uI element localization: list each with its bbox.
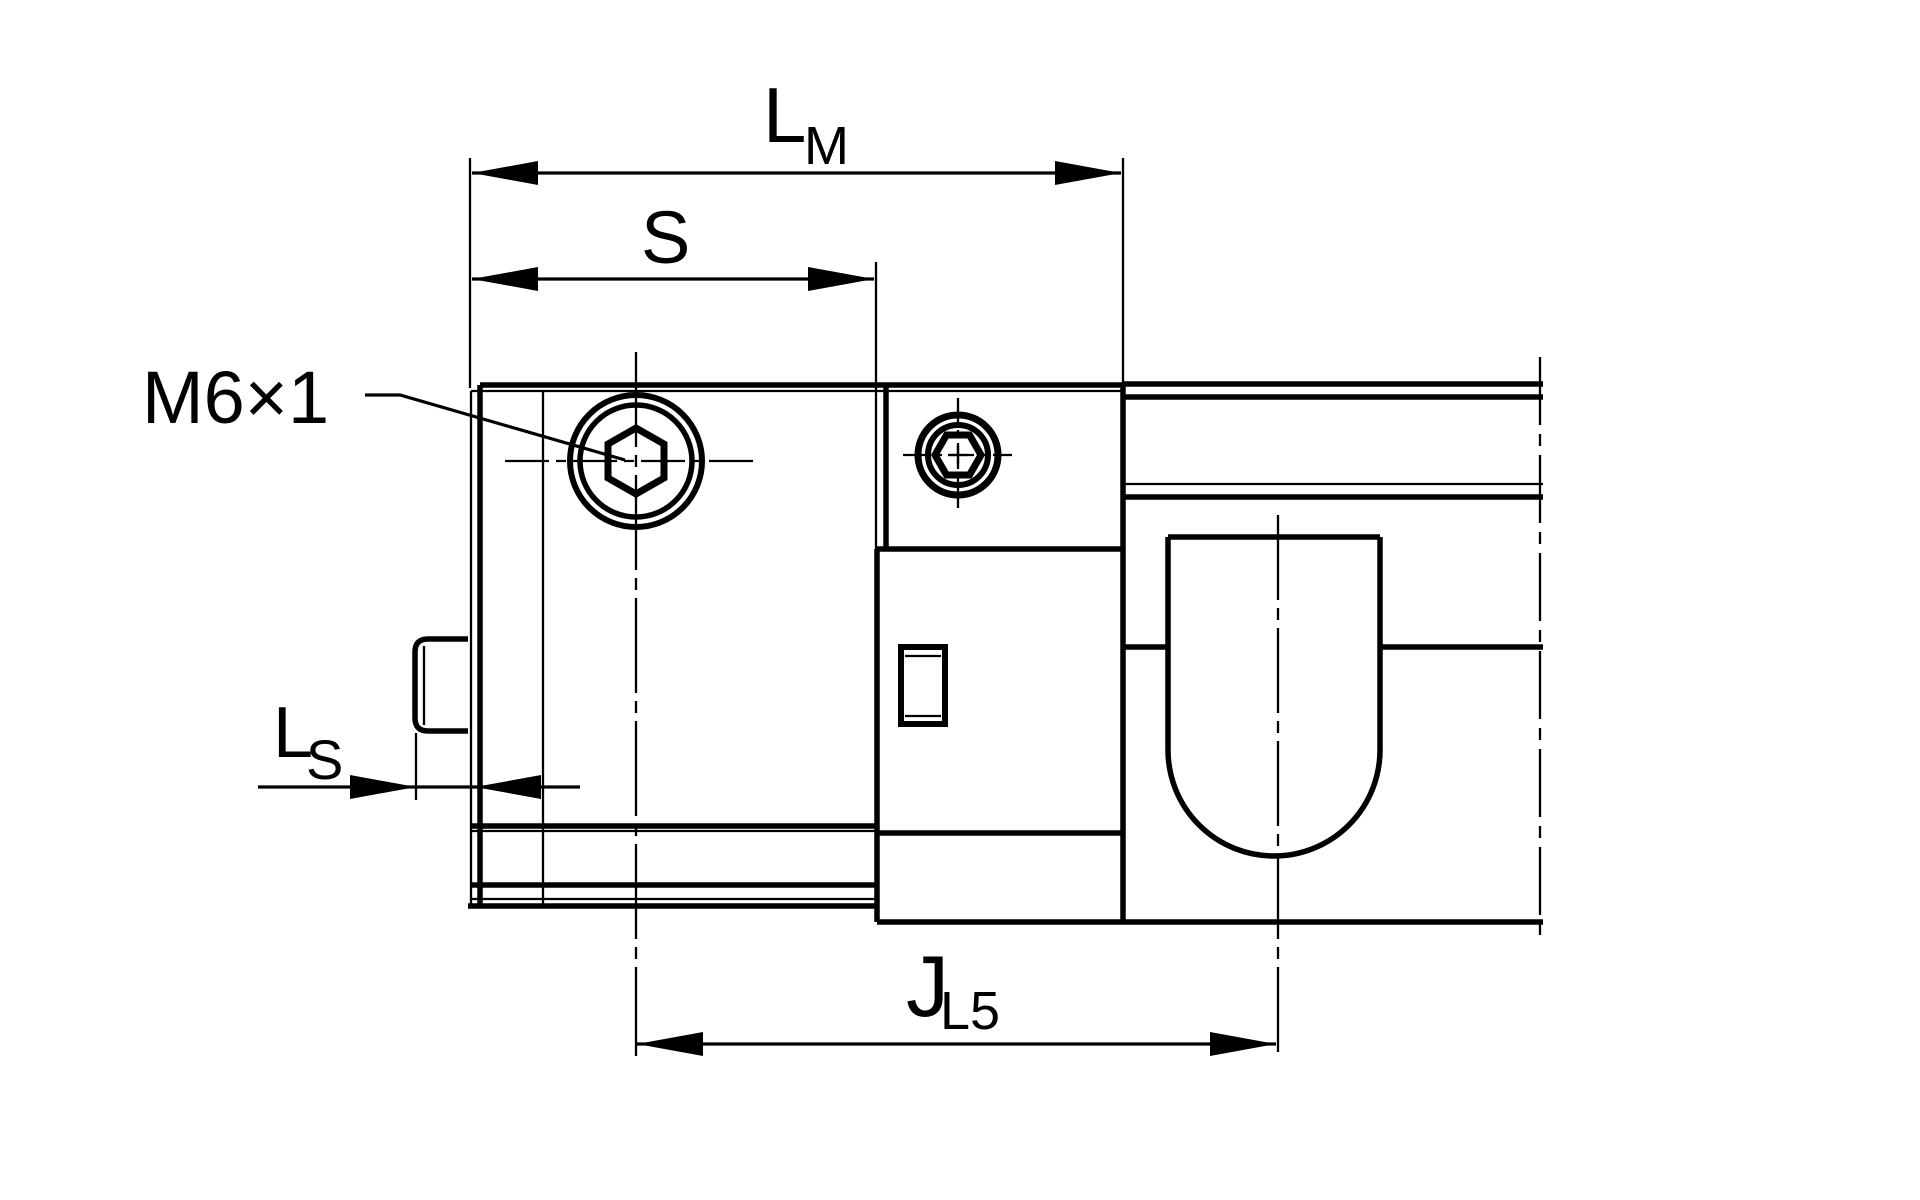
arrow-left-icon [637, 1032, 703, 1056]
sensor-slot [901, 647, 945, 724]
set-screw [903, 398, 1012, 508]
technical-drawing-canvas: L M S L S J L5 M6×1 [0, 0, 1920, 1200]
jl5-label-sub: L5 [940, 981, 1000, 1041]
leader-line [365, 395, 625, 460]
arrow-right-icon [1055, 161, 1121, 185]
dimension-ls: L S [258, 693, 580, 800]
thread-callout-label: M6×1 [142, 356, 329, 439]
dimension-lm: L M [470, 71, 1123, 388]
dimension-jl5: J L5 [637, 939, 1276, 1056]
ls-label-sub: S [306, 728, 343, 791]
thread-callout: M6×1 [142, 356, 625, 460]
lm-label-sub: M [804, 116, 849, 176]
lm-label: L [763, 71, 806, 159]
rail [1123, 357, 1543, 935]
arrow-right-icon [808, 267, 874, 291]
arrow-right-icon [1210, 1032, 1276, 1056]
s-label: S [641, 196, 690, 279]
arrow-right-icon [350, 775, 416, 799]
arrow-left-icon [475, 775, 541, 799]
dimension-s: S [472, 196, 874, 291]
grease-fitting [415, 639, 468, 731]
linear-guide-drawing: L M S L S J L5 M6×1 [0, 0, 1920, 1200]
arrow-left-icon [472, 161, 538, 185]
clamp-slot [1168, 515, 1380, 1057]
arrow-left-icon [472, 267, 538, 291]
